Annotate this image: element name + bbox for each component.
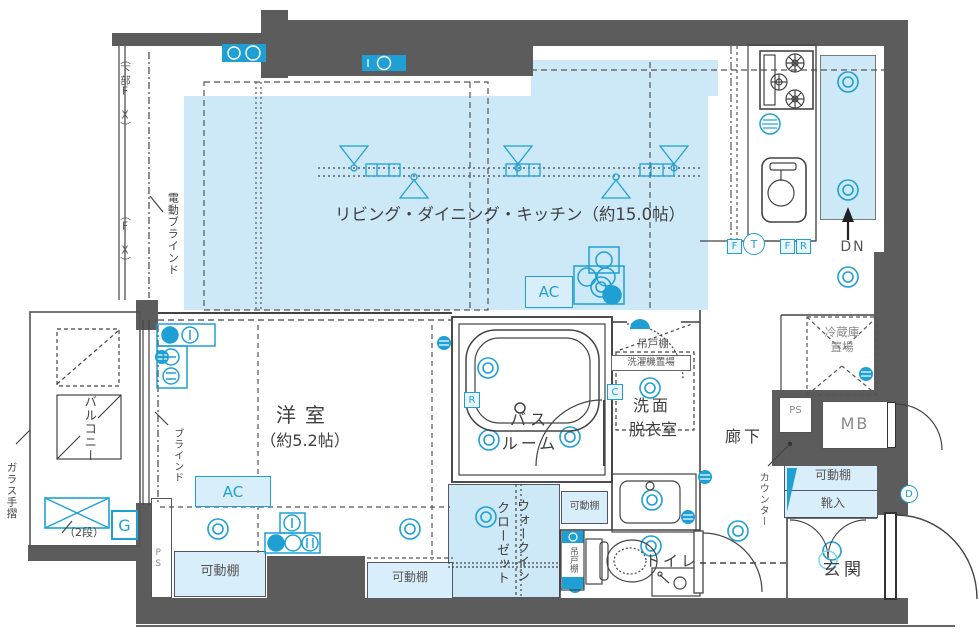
dn-label: DN: [834, 238, 872, 256]
fridge-label-2: 置場: [809, 341, 875, 355]
washroom-label-2: 脱衣室: [612, 420, 694, 440]
wall: [136, 598, 760, 624]
wic-label-1: ウォークイン: [511, 487, 530, 595]
ac-box-bedroom: AC: [195, 476, 271, 507]
c-mark: C: [607, 384, 623, 400]
toilet-label: トイレ: [638, 553, 706, 571]
floor-plan: リビング・ダイニング・キッチン（約15.0帖） 洋室 （約5.2帖） バス ルー…: [0, 0, 979, 635]
ac-label-1: AC: [223, 483, 243, 501]
wall: [531, 20, 908, 46]
washer-space-label: 洗濯機置場: [611, 355, 691, 371]
g-mark-label: G: [118, 516, 130, 535]
washroom-label-1: 洗面: [618, 396, 686, 416]
r-mark: R: [796, 239, 811, 254]
wall: [286, 20, 533, 76]
fix-label: （FIX）: [115, 192, 135, 284]
t-mark: T: [743, 233, 765, 255]
wic-label-2: クローゼット: [491, 488, 510, 598]
d-mark: D: [900, 485, 918, 503]
hanging-cupboard-toilet-label: 吊戸棚: [563, 540, 582, 580]
mb-label: MB: [822, 412, 888, 436]
ac-box-bath: AC: [525, 276, 573, 308]
f-mark-2: F: [780, 239, 795, 254]
ac-diagonals: [199, 280, 569, 503]
entrance-label: 玄関: [815, 560, 873, 582]
balcony-label: バルコニー: [78, 396, 100, 462]
t-label: T: [751, 238, 758, 251]
ldk-floor-upper: [531, 60, 718, 96]
r-bath-label: R: [469, 395, 476, 406]
ac-label-2: AC: [539, 283, 559, 301]
shelf-label-1: 可動棚: [174, 563, 266, 581]
wall: [261, 10, 288, 78]
wall: [267, 556, 365, 602]
counter-label: カウンター: [754, 461, 771, 537]
balcony-slab: [28, 545, 140, 561]
shelf-label-3: 可動棚: [561, 500, 608, 514]
entrance-door-leaf: [884, 512, 897, 600]
stair-floor: [820, 55, 876, 220]
r-mark-bath: R: [464, 392, 480, 408]
fridge-label-1: 冷蔵庫: [809, 326, 875, 340]
lower-fix-label: （下部FIX）: [115, 45, 135, 140]
ps-left-label: PS: [150, 541, 166, 577]
two-tier-label: （2段）: [56, 525, 112, 541]
bath-label-2: ルーム: [483, 434, 577, 454]
hallway-label: 廊下: [716, 427, 772, 447]
shoe-label: 靴入: [796, 496, 870, 512]
f-mark-1: F: [727, 239, 742, 254]
f-label-1: F: [732, 241, 738, 252]
shelf-label-2: 可動棚: [367, 570, 453, 586]
bedroom-label: 洋室: [250, 402, 360, 428]
wall: [136, 300, 158, 330]
wall: [112, 33, 267, 46]
glass-rail-label: ガラス手摺: [3, 443, 20, 538]
ps-label: PS: [779, 404, 812, 418]
mb-door-leaf: [887, 402, 896, 448]
wall: [884, 44, 908, 256]
r-label: R: [800, 241, 807, 252]
bath-label-1: バス: [492, 410, 568, 430]
bedroom-size-label: （約5.2帖）: [240, 431, 370, 451]
ldk-floor: [184, 96, 708, 310]
f-label-2: F: [785, 241, 791, 252]
electric-blind-label: 電動ブラインド: [162, 178, 182, 290]
blind-label: ブラインド: [167, 416, 187, 494]
wall: [756, 598, 908, 624]
shelf-label-4: 可動棚: [796, 468, 870, 484]
d-label: D: [905, 489, 913, 500]
washroom-fixtures: [612, 352, 696, 532]
g-mark: G: [111, 510, 138, 540]
hanging-cupboard-label: 吊戸棚: [622, 337, 684, 351]
c-label: C: [612, 387, 619, 398]
ldk-label: リビング・ダイニング・キッチン（約15.0帖）: [320, 204, 700, 226]
